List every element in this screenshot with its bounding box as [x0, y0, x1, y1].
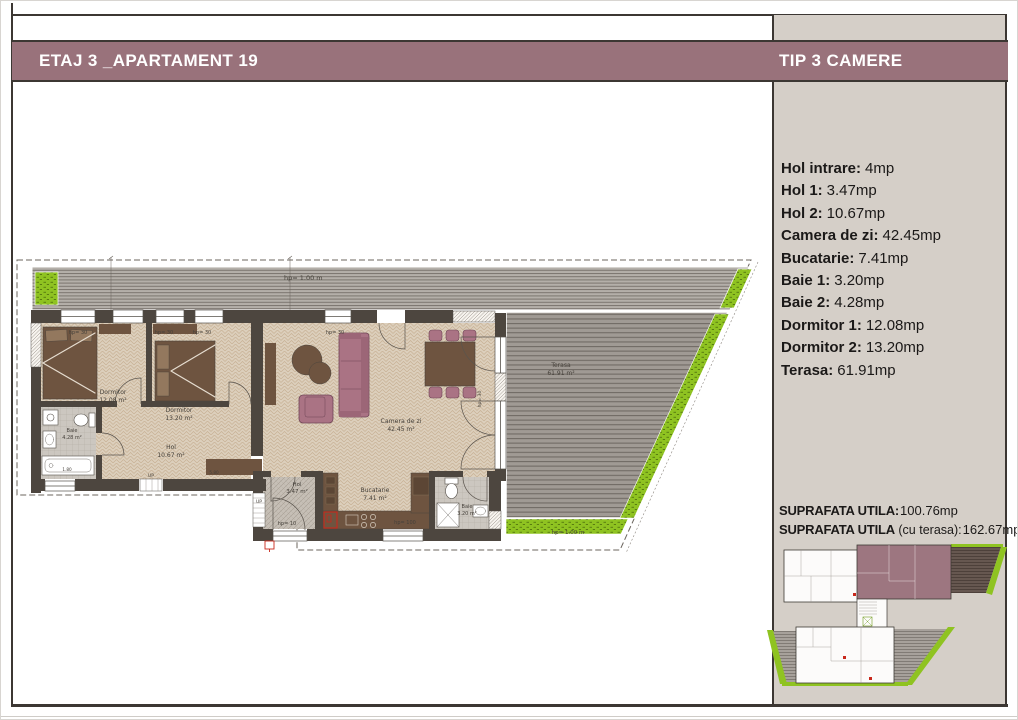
hp100-label: hp= 100: [394, 520, 416, 526]
room-list-item: Dormitor 2:13.20mp: [781, 337, 1001, 359]
key-plan: [767, 535, 1011, 697]
parapet-height-label: hp= 1.00 m: [284, 274, 323, 282]
tv-cabinet: [265, 343, 276, 405]
entry-stairs: [253, 493, 265, 527]
washing-machine: [43, 410, 58, 425]
header-band: ETAJ 3 _APARTAMENT 19 TIP 3 CAMERE: [12, 40, 1008, 82]
room-list-item: Camera de zi:42.45mp: [781, 225, 1001, 247]
glass-door: [495, 401, 506, 469]
page-edge-shadow: [1, 716, 1018, 717]
hall1-label: Hol: [292, 482, 302, 488]
terrace-area-label: 61.91 m²: [547, 370, 575, 377]
dining-set: [425, 330, 476, 398]
window: [195, 310, 223, 323]
dining-table: [425, 342, 475, 386]
livingroom-label: Camera de zi: [381, 418, 422, 425]
toilet-tank-2: [445, 478, 458, 484]
room-area-list: Hol intrare:4mp Hol 1:3.47mp Hol 2:10.67…: [781, 158, 1001, 382]
window: [273, 531, 307, 541]
room-label: Bucatarie:: [781, 250, 854, 267]
hall2-area: 10.67 m²: [157, 452, 185, 459]
room-list-item: Bucatarie:7.41mp: [781, 248, 1001, 270]
frame-line-bottom: [11, 704, 1008, 707]
bedroom1-area: 12.08 m²: [99, 397, 127, 404]
keyplan-neighbor-bottom: [796, 627, 894, 683]
oven: [413, 477, 429, 495]
room-list-item: Dormitor 1:12.08mp: [781, 315, 1001, 337]
hp30-label: hp= 30: [326, 330, 344, 336]
total-label: SUPRAFATA UTILA:: [779, 503, 899, 518]
glass-door: [495, 337, 506, 373]
up-label: UP: [148, 473, 154, 479]
toilet-2: [446, 484, 458, 499]
planter-green-left: [35, 272, 58, 305]
room-list-item: Baie 2:4.28mp: [781, 292, 1001, 314]
room-value: 10.67mp: [827, 205, 885, 222]
room-list-item: Hol 1:3.47mp: [781, 180, 1001, 202]
terrace: Terasa 61.91 m² hp= 1.00 m: [506, 312, 729, 536]
hp30-label: hp= 30: [69, 330, 87, 336]
room-value: 61.91mp: [837, 362, 895, 379]
room-label: Camera de zi:: [781, 227, 879, 244]
total-usable-area: SUPRAFATA UTILA:100.76mp: [779, 502, 1005, 521]
armchair: [299, 395, 333, 423]
bedroom1-label: Dormitor: [100, 389, 127, 396]
kitchen-label: Bucatarie: [361, 487, 390, 494]
hp30-label: hp= 30: [193, 330, 211, 336]
room-label: Hol intrare:: [781, 160, 861, 177]
bedroom2-area: 13.20 m²: [165, 415, 193, 422]
hp30-label-vertical: hp= 30: [477, 391, 483, 408]
room-value: 12.08mp: [866, 317, 924, 334]
room-list-item: Terasa:61.91mp: [781, 360, 1001, 382]
bathroom1-label: Baie: [67, 428, 78, 434]
wardrobe-1: [99, 324, 131, 334]
up-label: UP: [256, 499, 262, 505]
room-label: Terasa:: [781, 362, 833, 379]
kitchen-area: 7.41 m²: [363, 495, 387, 502]
sink-1: [43, 431, 56, 448]
page: ETAJ 3 _APARTAMENT 19 TIP 3 CAMERE Hol i…: [0, 0, 1018, 720]
toilet-tank-1: [89, 413, 95, 427]
drain-symbol: [265, 541, 274, 549]
toilet-1: [74, 414, 88, 426]
room-value: 4mp: [865, 160, 894, 177]
window: [383, 531, 423, 541]
room-value: 13.20mp: [866, 339, 924, 356]
terrace-parapet-label: hp= 1.00 m: [552, 530, 585, 536]
room-label: Dormitor 1:: [781, 317, 862, 334]
area-totals: SUPRAFATA UTILA:100.76mp SUPRAFATA UTILA…: [779, 502, 1005, 539]
window: [45, 481, 75, 491]
bed-1: [43, 327, 97, 399]
room-label: Baie 2:: [781, 294, 830, 311]
bed-2: [155, 341, 215, 401]
bathroom2-area: 3.20 m²: [457, 511, 477, 517]
bathroom2-label: Baie: [462, 504, 473, 510]
hall-stairs: [140, 479, 162, 491]
room-label: Dormitor 2:: [781, 339, 862, 356]
room-list-item: Hol 2:10.67mp: [781, 203, 1001, 225]
hall2-label: Hol: [166, 444, 176, 451]
terrace-label: Terasa: [550, 362, 571, 369]
keyplan-terrace-dark: [951, 544, 1007, 595]
floor-plan: hp= 1.00 m Terasa 61.91 m² hp= 1.00 m: [13, 253, 765, 565]
room-value: 4.28mp: [834, 294, 884, 311]
dimension-label: 1.80: [62, 467, 72, 472]
hall1-area: 3.47 m²: [286, 488, 308, 495]
bedroom2-label: Dormitor: [166, 407, 193, 414]
apartment-type-label: TIP 3 CAMERE: [779, 42, 903, 80]
window: [325, 310, 351, 323]
room-list-item: Baie 1:3.20mp: [781, 270, 1001, 292]
window: [113, 310, 143, 323]
room-label: Hol 2:: [781, 205, 823, 222]
keyplan-highlighted-unit: [853, 545, 951, 599]
room-value: 42.45mp: [883, 227, 941, 244]
room-value: 3.20mp: [834, 272, 884, 289]
bathroom1-area: 4.28 m²: [62, 435, 82, 441]
hp30-label: hp= 30: [155, 330, 173, 336]
sofa: [339, 333, 369, 417]
room-label: Baie 1:: [781, 272, 830, 289]
total-value: 100.76mp: [900, 503, 958, 518]
room-list-item: Hol intrare:4mp: [781, 158, 1001, 180]
window: [156, 310, 184, 323]
window: [61, 310, 95, 323]
room-value: 3.47mp: [827, 182, 877, 199]
room-label: Hol 1:: [781, 182, 823, 199]
livingroom-area: 42.45 m²: [387, 426, 415, 433]
keyplan-core: [857, 599, 887, 629]
page-title: ETAJ 3 _APARTAMENT 19: [39, 42, 258, 80]
keyplan-neighbor-top: [784, 550, 858, 602]
dimension-label: 5.80: [209, 470, 219, 475]
hp10-label: hp= 10: [278, 521, 296, 527]
room-value: 7.41mp: [858, 250, 908, 267]
